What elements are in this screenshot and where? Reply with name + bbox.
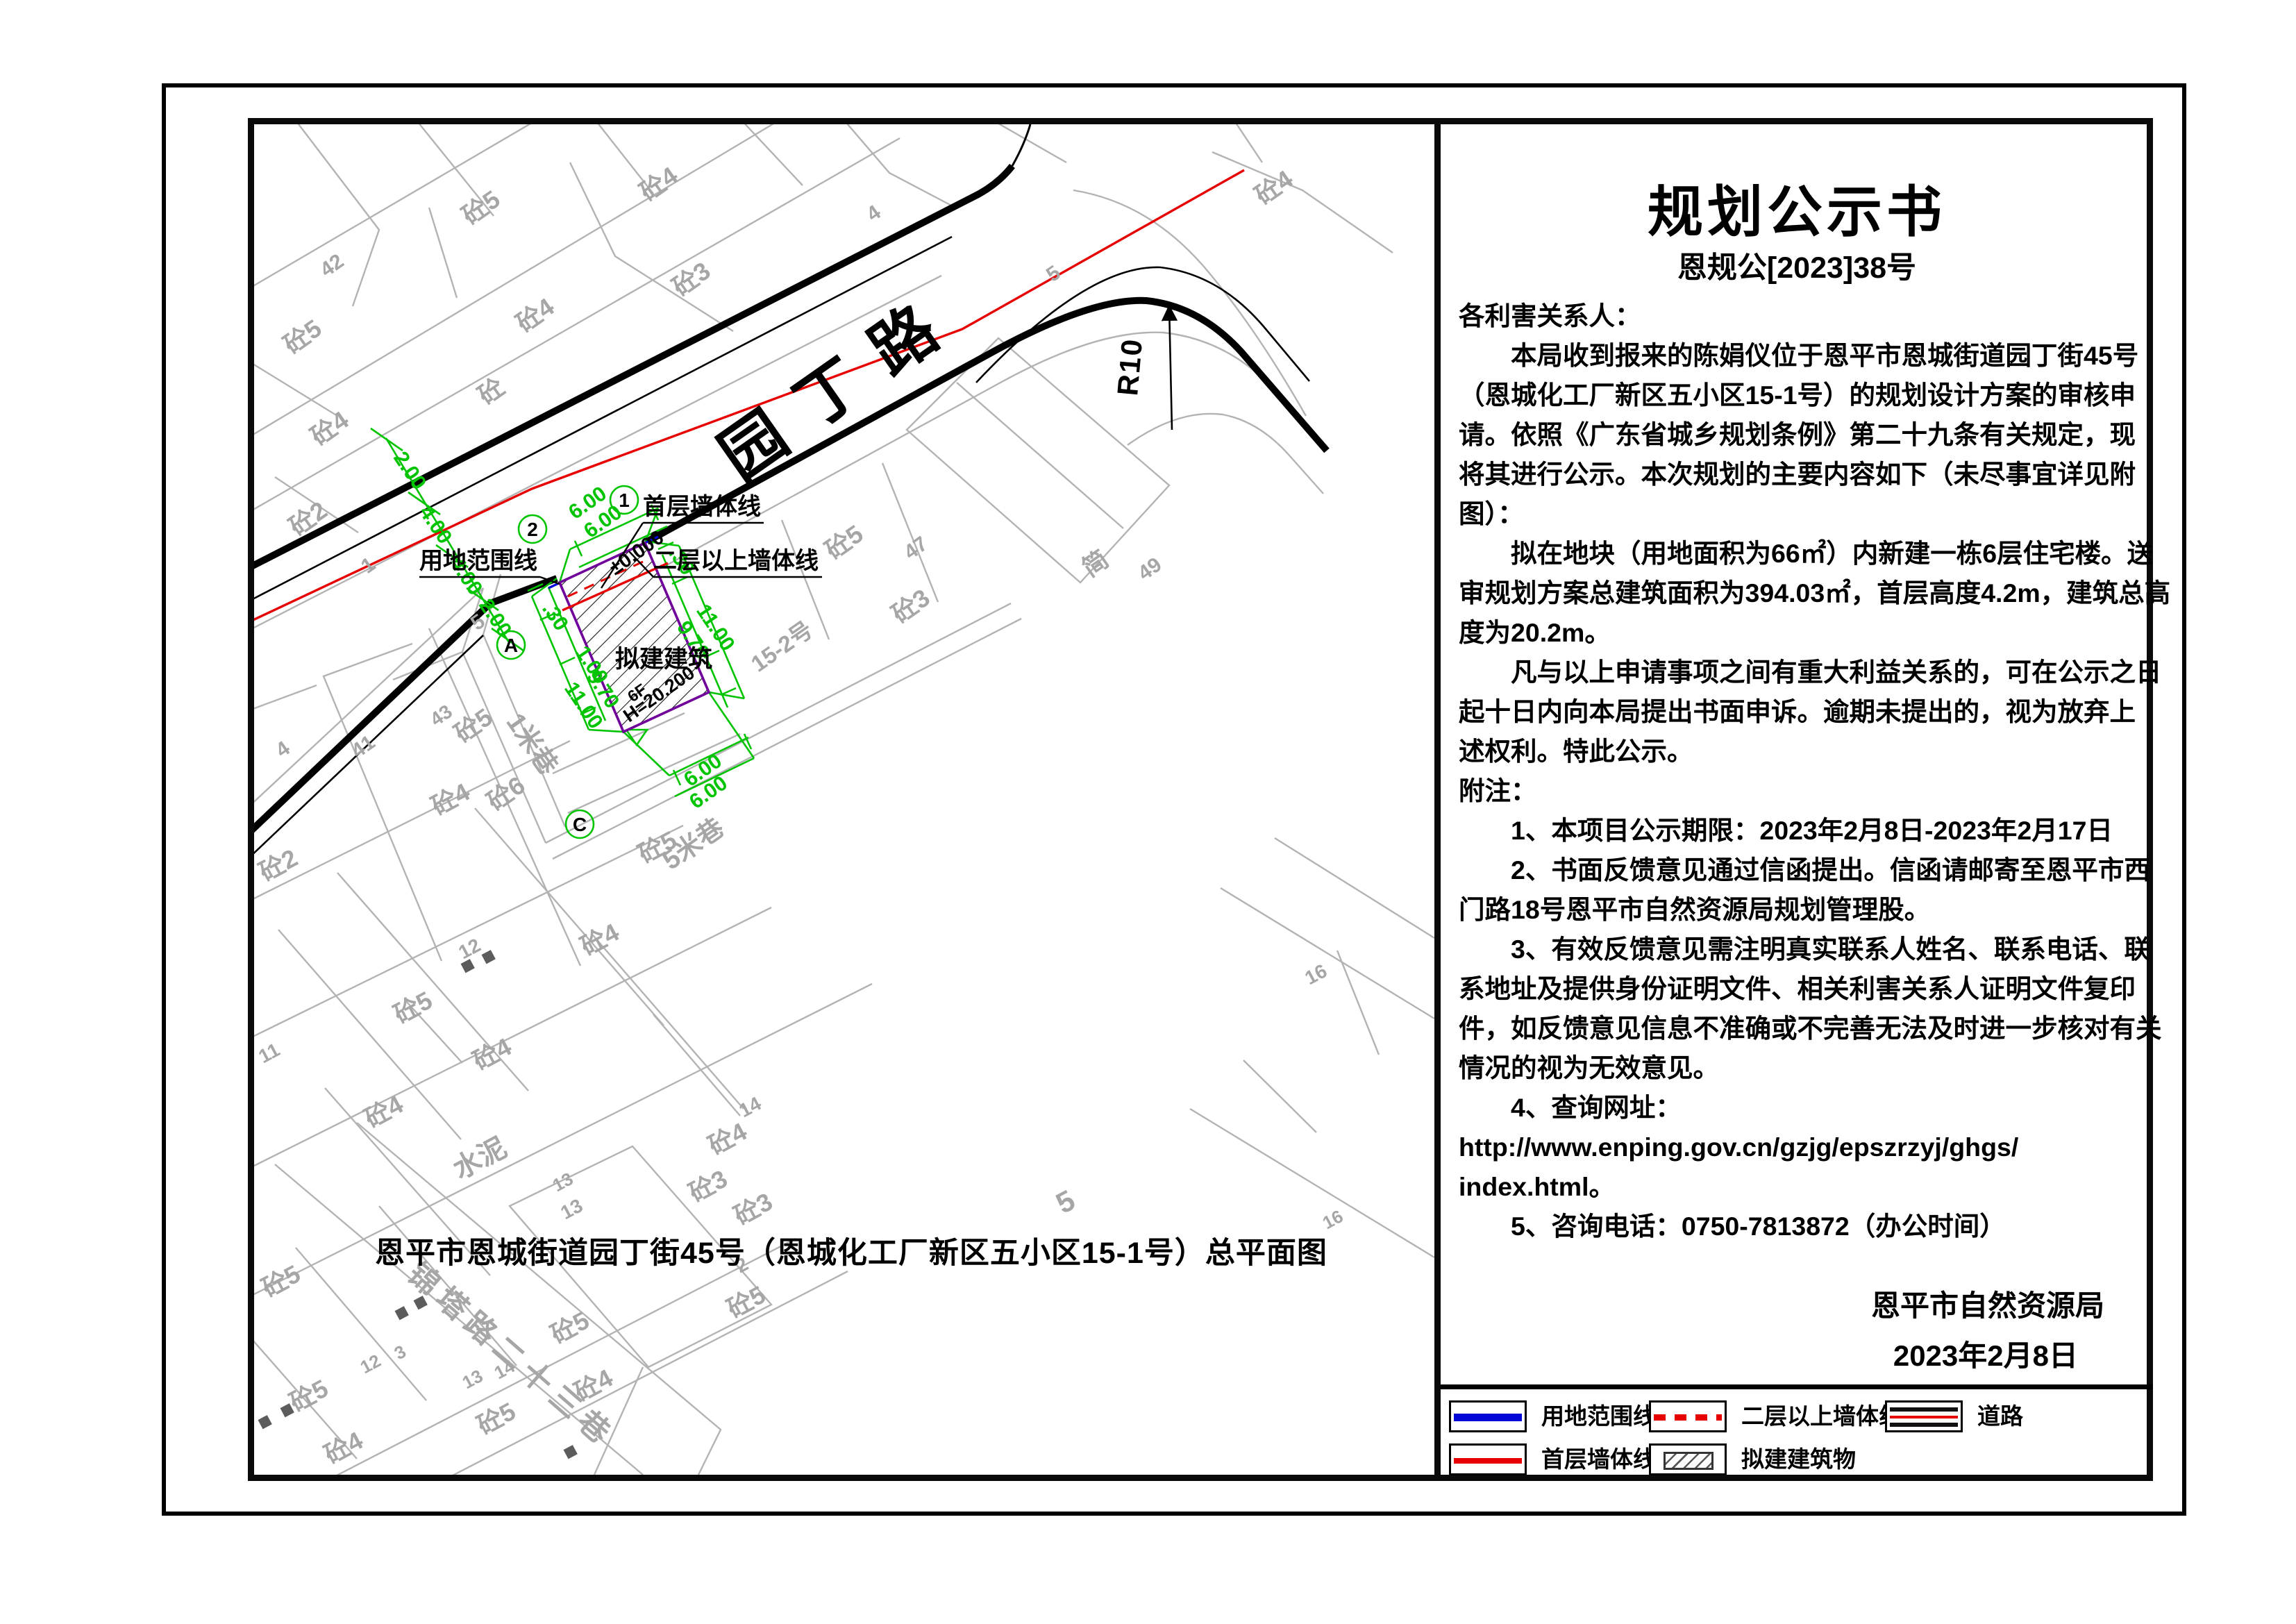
legend-swatch-site-boundary	[1449, 1400, 1527, 1432]
notice-line: 请。依照《广东省城乡规划条例》第二十九条有关规定，现	[1459, 415, 2139, 455]
notice-line: 述权利。特此公示。	[1459, 732, 2139, 771]
plot-label: 砼5	[473, 1397, 521, 1441]
map-legend: 用地范围线 二层以上墙体线 道路 首层墙体线 拟建建筑物	[1441, 1384, 2153, 1481]
notice-line: 凡与以上申请事项之间有重大利益关系的，可在公示之日	[1459, 653, 2139, 692]
r10-arrow	[1169, 306, 1172, 430]
hatch-sample	[1664, 1452, 1713, 1470]
road-sample-black-bottom	[1890, 1423, 1958, 1427]
axis-bubble-number: 2	[527, 519, 538, 540]
plot-label: 14	[735, 1092, 764, 1121]
notice-line: 系地址及提供身份证明文件、相关利害关系人证明文件复印	[1459, 969, 2139, 1009]
lane-name-label: 1米巷	[501, 708, 564, 780]
plot-label: 砼5	[449, 703, 497, 748]
plot-label: 12	[455, 934, 484, 963]
plot-label: 砼5	[820, 519, 868, 565]
plot-label: 3	[391, 1341, 410, 1364]
plot-label: 砼3	[887, 583, 935, 629]
notice-line: 度为20.2m。	[1459, 613, 2139, 653]
notice-line: 4、查询网址：	[1459, 1088, 2139, 1128]
notice-line: 图）：	[1459, 494, 2139, 534]
road-sample-black-top	[1890, 1407, 1958, 1412]
plot-label: 砼5	[389, 986, 437, 1030]
notice-line: 各利害关系人：	[1459, 296, 2139, 336]
plot-label: 砼2	[255, 844, 303, 887]
notice-doc-number: 恩规公[2023]38号	[1441, 244, 2153, 287]
plot-label: 砼5	[258, 1259, 305, 1303]
plot-label: 13	[557, 1194, 586, 1223]
notice-title: 规划公示书	[1441, 167, 2153, 248]
plot-label: 16	[1301, 960, 1330, 989]
panel-divider	[1434, 118, 1441, 1481]
plot-label: 42	[316, 250, 348, 282]
notice-line: 2、书面反馈意见通过信函提出。信函请邮寄至恩平市西	[1459, 851, 2139, 890]
notice-date: 2023年2月8日	[1893, 1332, 2078, 1375]
legend-swatch-upper-wall	[1649, 1400, 1727, 1432]
plot-label: 砼4	[305, 405, 353, 451]
legend-label: 二层以上墙体线	[1741, 1400, 1902, 1432]
notice-line: 审规划方案总建筑面积为394.03㎡，首层高度4.2m，建筑总高	[1459, 574, 2139, 613]
plot-label: 5	[1050, 1183, 1080, 1219]
notice-line: 情况的视为无效意见。	[1459, 1048, 2139, 1088]
plot-label: 砼5	[457, 185, 505, 231]
plot-label: 11	[255, 1039, 283, 1067]
notice-line: 将其进行公示。本次规划的主要内容如下（未尽事宜详见附	[1459, 455, 2139, 494]
notice-line: 件，如反馈意见信息不准确或不完善无法及时进一步核对有关	[1459, 1009, 2139, 1048]
notice-line: 1、本项目公示期限：2023年2月8日-2023年2月17日	[1459, 811, 2139, 851]
plot-label: 4	[271, 737, 294, 762]
scanned-planning-notice-page: 42砼5砼4砼3砼4砼砼5砼4砼214砼45砼547砼3简4915-2号543砼…	[0, 0, 2296, 1624]
plot-label: 砼5	[546, 1306, 594, 1350]
callout-label: 首层墙体线	[643, 494, 761, 520]
callout-label: 二层以上墙体线	[653, 548, 819, 574]
plot-label: 13	[459, 1365, 487, 1393]
legend-label: 用地范围线	[1541, 1400, 1656, 1432]
lane-name-label: 水泥	[449, 1132, 512, 1185]
legend-swatch-first-floor-wall	[1449, 1443, 1527, 1475]
axis-bubble-number: A	[504, 635, 518, 656]
legend-swatch-road	[1885, 1400, 1963, 1432]
site-plan-map: 42砼5砼4砼3砼4砼砼5砼4砼214砼45砼547砼3简4915-2号543砼…	[254, 124, 1434, 1475]
plot-label: 砼4	[511, 292, 559, 338]
plot-label: 13	[549, 1168, 577, 1196]
plot-label: 砼4	[427, 778, 475, 821]
notice-line: 5、咨询电话：0750-7813872（办公时间）	[1459, 1207, 2139, 1246]
axis-bubble-number: 1	[619, 489, 630, 511]
plot-label: 4	[862, 201, 885, 226]
legend-label: 拟建建筑物	[1741, 1443, 1856, 1475]
road-yuanding	[254, 124, 1327, 873]
road-name-label: R10	[1111, 337, 1148, 397]
plot-label: 简	[1077, 544, 1114, 582]
blue-line-sample	[1454, 1414, 1522, 1421]
map-caption: 恩平市恩城街道园丁街45号（恩城化工厂新区五小区15-1号）总平面图	[375, 1229, 1416, 1272]
plot-label: 47	[900, 533, 932, 564]
notice-line: index.html。	[1459, 1167, 2139, 1207]
notice-body: 各利害关系人： 本局收到报来的陈娟仪位于恩平市恩城街道园丁街45号（恩城化工厂新…	[1459, 296, 2139, 1246]
notice-line: 3、有效反馈意见需注明真实联系人姓名、联系电话、联	[1459, 930, 2139, 969]
plot-label: 49	[1134, 553, 1166, 585]
notice-line: 起十日内向本局提出书面申诉。逾期未提出的，视为放弃上	[1459, 692, 2139, 732]
notice-panel: 规划公示书 恩规公[2023]38号 各利害关系人： 本局收到报来的陈娟仪位于恩…	[1441, 124, 2153, 1384]
road-sample-red-middle	[1890, 1416, 1958, 1418]
plot-label: 12	[357, 1350, 385, 1378]
callout-label: 用地范围线	[419, 548, 537, 574]
legend-label: 道路	[1977, 1400, 2023, 1432]
legend-swatch-proposed-building	[1649, 1443, 1727, 1475]
notice-line: 附注：	[1459, 771, 2139, 811]
plot-label: 砼4	[576, 918, 624, 962]
plot-label: 砼5	[723, 1280, 771, 1324]
red-line-sample	[1454, 1458, 1522, 1464]
legend-label: 首层墙体线	[1541, 1443, 1656, 1475]
plot-label: 砼	[473, 372, 510, 410]
plot-label: 砼4	[704, 1117, 752, 1161]
plot-label: 砼5	[278, 314, 326, 360]
notice-signature: 恩平市自然资源局	[1871, 1282, 2104, 1325]
axis-bubble-number: C	[573, 814, 587, 835]
notice-line: 拟在地块（用地面积为66㎡）内新建一栋6层住宅楼。送	[1459, 534, 2139, 574]
plot-label: 砼3	[730, 1187, 778, 1231]
plot-label: 砼6	[482, 771, 530, 817]
notice-line: （恩城化工厂新区五小区15-1号）的规划设计方案的审核申	[1459, 376, 2139, 415]
notice-line: 门路18号恩平市自然资源局规划管理股。	[1459, 890, 2139, 930]
plot-label: 砼3	[685, 1164, 732, 1208]
notice-line: 本局收到报来的陈娟仪位于恩平市恩城街道园丁街45号	[1459, 336, 2139, 376]
lane-name-label: 5米巷	[657, 813, 730, 876]
plot-label: 砼4	[360, 1090, 408, 1134]
red-dashed-sample	[1654, 1414, 1722, 1421]
plot-label: 砼4	[635, 161, 682, 207]
building-annotation: 拟建建筑	[615, 646, 712, 673]
plot-label: 15-2号	[746, 617, 817, 677]
notice-line: http://www.enping.gov.cn/gzjg/epszrzyj/g…	[1459, 1128, 2139, 1167]
plot-label: 砼2	[284, 496, 332, 542]
